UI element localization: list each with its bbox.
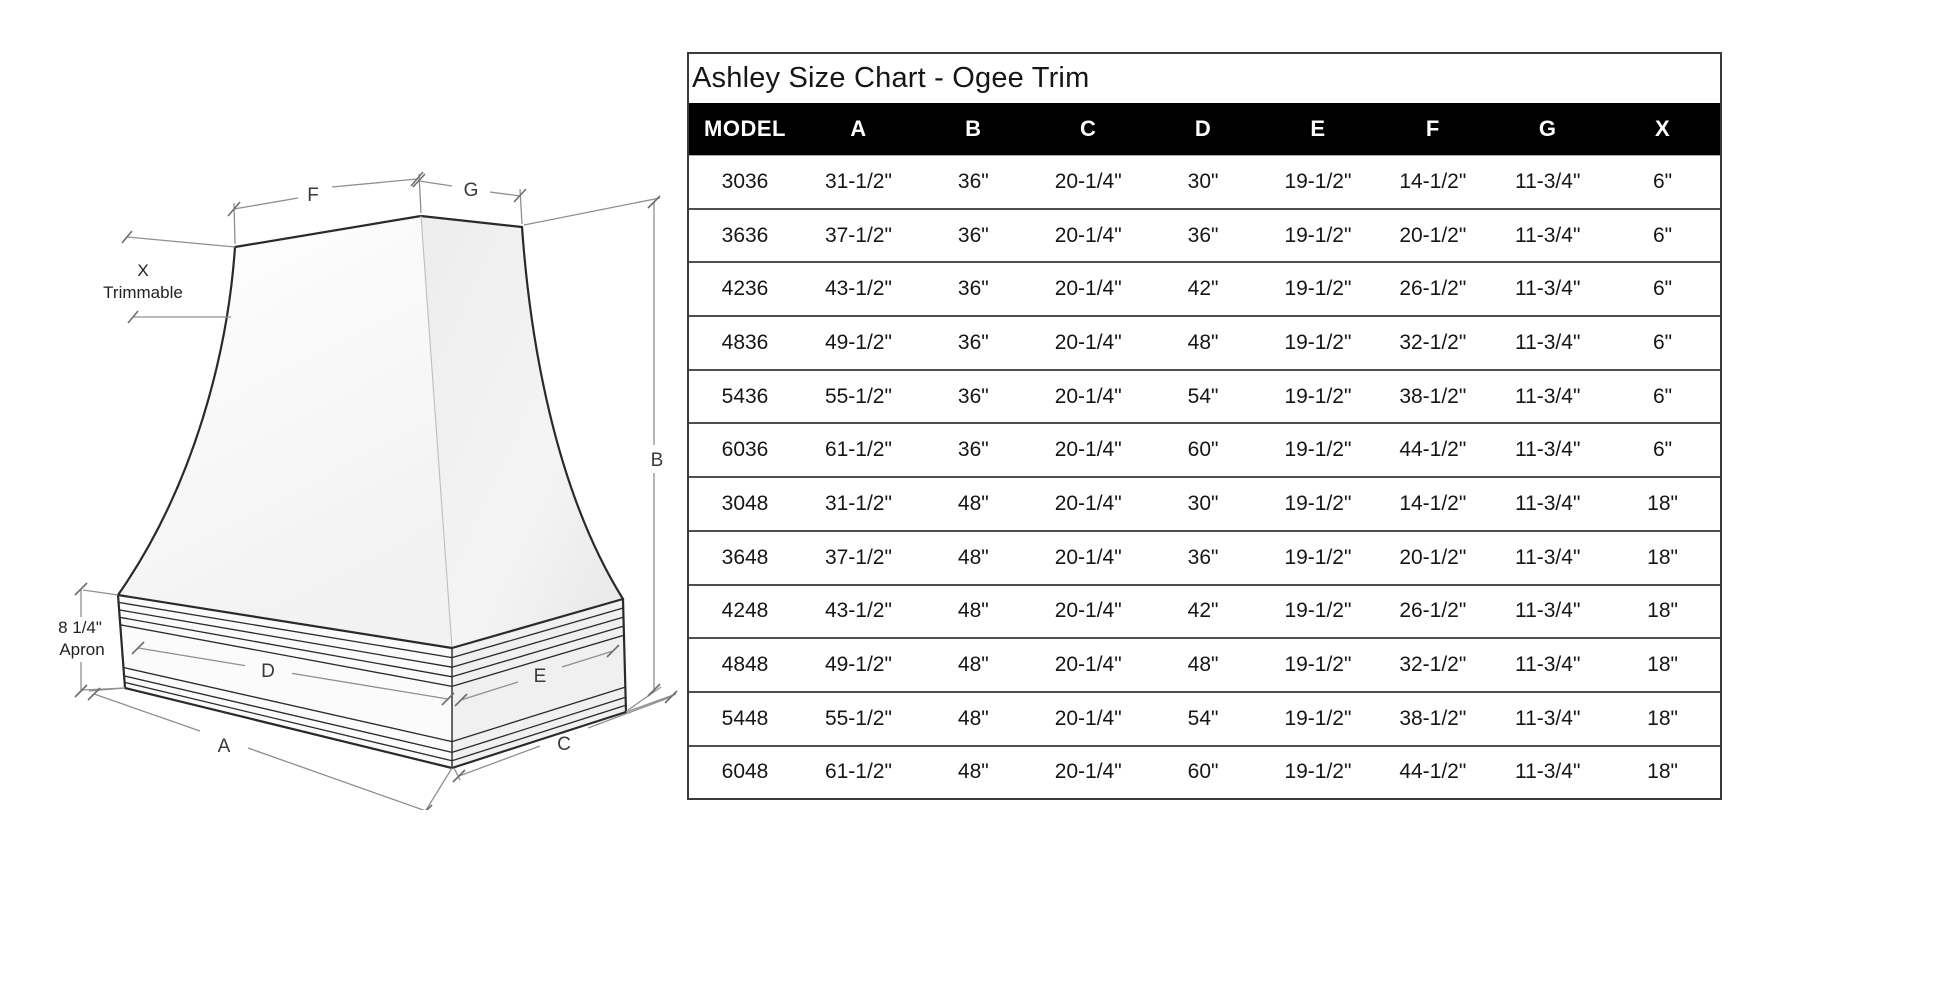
dimension-cell: 49-1/2" [801,316,916,370]
hood-diagram: F G B X Trimmable [40,170,680,810]
dimension-cell: 44-1/2" [1375,746,1490,799]
dimension-cell: 18" [1605,638,1720,692]
table-row: 604861-1/2"48"20-1/4"60"19-1/2"44-1/2"11… [689,746,1720,799]
table-row: 304831-1/2"48"20-1/4"30"19-1/2"14-1/2"11… [689,477,1720,531]
dimension-cell: 49-1/2" [801,638,916,692]
dimension-cell: 11-3/4" [1490,370,1605,424]
dimension-cell: 26-1/2" [1375,585,1490,639]
model-cell: 5448 [689,692,801,746]
header-row: MODEL A B C D E F G X [689,103,1720,156]
dimension-cell: 48" [916,585,1031,639]
dimension-cell: 20-1/4" [1031,370,1146,424]
dimension-cell: 30" [1146,156,1261,209]
table-row: 424843-1/2"48"20-1/4"42"19-1/2"26-1/2"11… [689,585,1720,639]
dimension-cell: 6" [1605,262,1720,316]
column-header-d: D [1146,103,1261,156]
model-cell: 3036 [689,156,801,209]
page: F G B X Trimmable [0,0,1946,1003]
model-cell: 5436 [689,370,801,424]
dimension-cell: 20-1/4" [1031,746,1146,799]
dimension-cell: 36" [1146,209,1261,263]
dimension-cell: 20-1/4" [1031,585,1146,639]
dimension-cell: 18" [1605,746,1720,799]
dimension-cell: 14-1/2" [1375,156,1490,209]
x-trimmable-label: X [137,261,148,280]
size-table-header: MODEL A B C D E F G X [689,103,1720,156]
dimension-cell: 11-3/4" [1490,585,1605,639]
dimension-cell: 19-1/2" [1261,209,1376,263]
dimension-label-g: G [464,180,479,201]
dimension-cell: 48" [916,746,1031,799]
table-row: 423643-1/2"36"20-1/4"42"19-1/2"26-1/2"11… [689,262,1720,316]
dimension-cell: 18" [1605,477,1720,531]
dimension-label-f: F [307,185,319,206]
table-row: 483649-1/2"36"20-1/4"48"19-1/2"32-1/2"11… [689,316,1720,370]
model-cell: 3048 [689,477,801,531]
dimension-cell: 42" [1146,262,1261,316]
dimension-cell: 19-1/2" [1261,156,1376,209]
dimension-cell: 43-1/2" [801,262,916,316]
dimension-cell: 11-3/4" [1490,531,1605,585]
column-header-a: A [801,103,916,156]
dimension-cell: 31-1/2" [801,156,916,209]
dimension-cell: 20-1/4" [1031,638,1146,692]
table-row: 603661-1/2"36"20-1/4"60"19-1/2"44-1/2"11… [689,423,1720,477]
dimension-cell: 6" [1605,209,1720,263]
dimension-cell: 48" [916,692,1031,746]
dimension-cell: 11-3/4" [1490,477,1605,531]
dimension-cell: 36" [916,370,1031,424]
dimension-cell: 36" [916,262,1031,316]
dimension-cell: 19-1/2" [1261,585,1376,639]
dimension-cell: 48" [1146,316,1261,370]
dimension-cell: 20-1/4" [1031,531,1146,585]
dimension-cell: 48" [916,477,1031,531]
column-header-x: X [1605,103,1720,156]
table-row: 363637-1/2"36"20-1/4"36"19-1/2"20-1/2"11… [689,209,1720,263]
table-row: 303631-1/2"36"20-1/4"30"19-1/2"14-1/2"11… [689,156,1720,209]
dimension-cell: 38-1/2" [1375,370,1490,424]
dimension-cell: 19-1/2" [1261,638,1376,692]
dimension-cell: 19-1/2" [1261,262,1376,316]
dimension-cell: 11-3/4" [1490,423,1605,477]
dimension-cell: 36" [916,156,1031,209]
dimension-cell: 6" [1605,316,1720,370]
dimension-cell: 36" [1146,531,1261,585]
model-cell: 4236 [689,262,801,316]
dimension-cell: 6" [1605,370,1720,424]
dimension-cell: 20-1/4" [1031,692,1146,746]
dimension-cell: 36" [916,209,1031,263]
dimension-cell: 20-1/4" [1031,209,1146,263]
dimension-cell: 61-1/2" [801,423,916,477]
table-row: 364837-1/2"48"20-1/4"36"19-1/2"20-1/2"11… [689,531,1720,585]
dimension-cell: 38-1/2" [1375,692,1490,746]
dimension-cell: 55-1/2" [801,692,916,746]
dimension-cell: 20-1/4" [1031,262,1146,316]
dimension-label-e: E [534,666,547,687]
dimension-cell: 19-1/2" [1261,531,1376,585]
dimension-cell: 60" [1146,746,1261,799]
dimension-cell: 11-3/4" [1490,746,1605,799]
dimension-label-b: B [651,450,664,471]
dimension-cell: 19-1/2" [1261,370,1376,424]
dimension-cell: 55-1/2" [801,370,916,424]
column-header-b: B [916,103,1031,156]
model-cell: 4848 [689,638,801,692]
dimension-cell: 32-1/2" [1375,316,1490,370]
dimension-cell: 20-1/4" [1031,156,1146,209]
column-header-e: E [1261,103,1376,156]
dimension-cell: 20-1/4" [1031,477,1146,531]
dimension-cell: 11-3/4" [1490,262,1605,316]
dimension-cell: 11-3/4" [1490,209,1605,263]
dimension-cell: 6" [1605,156,1720,209]
dimension-cell: 11-3/4" [1490,156,1605,209]
dimension-cell: 48" [916,638,1031,692]
apron-dimension-value: 8 1/4" [58,618,102,637]
dimension-cell: 31-1/2" [801,477,916,531]
dimension-cell: 32-1/2" [1375,638,1490,692]
dimension-cell: 43-1/2" [801,585,916,639]
dimension-cell: 11-3/4" [1490,638,1605,692]
dimension-cell: 20-1/2" [1375,209,1490,263]
dimension-cell: 20-1/2" [1375,531,1490,585]
apron-dimension-word: Apron [59,640,104,659]
dimension-cell: 48" [916,531,1031,585]
dimension-cell: 20-1/4" [1031,316,1146,370]
dimension-cell: 37-1/2" [801,531,916,585]
table-row: 484849-1/2"48"20-1/4"48"19-1/2"32-1/2"11… [689,638,1720,692]
dimension-cell: 18" [1605,585,1720,639]
dimension-cell: 36" [916,423,1031,477]
dimension-cell: 6" [1605,423,1720,477]
page-title: Ashley Size Chart - Ogee Trim [689,54,1720,103]
model-cell: 6048 [689,746,801,799]
column-header-f: F [1375,103,1490,156]
dimension-cell: 14-1/2" [1375,477,1490,531]
table-row: 544855-1/2"48"20-1/4"54"19-1/2"38-1/2"11… [689,692,1720,746]
hood-body [118,216,626,768]
model-cell: 4836 [689,316,801,370]
hood-diagram-svg: F G B X Trimmable [40,170,680,810]
dimension-cell: 18" [1605,692,1720,746]
dimension-cell: 44-1/2" [1375,423,1490,477]
dimension-cell: 19-1/2" [1261,746,1376,799]
dimension-cell: 19-1/2" [1261,316,1376,370]
dimension-cell: 30" [1146,477,1261,531]
dimension-cell: 54" [1146,370,1261,424]
model-cell: 6036 [689,423,801,477]
dimension-cell: 37-1/2" [801,209,916,263]
dimension-cell: 60" [1146,423,1261,477]
dimension-cell: 18" [1605,531,1720,585]
dimension-cell: 42" [1146,585,1261,639]
column-header-c: C [1031,103,1146,156]
model-cell: 3636 [689,209,801,263]
dimension-cell: 19-1/2" [1261,692,1376,746]
size-table: MODEL A B C D E F G X 303631-1/2"36"20-1… [689,103,1720,798]
table-row: 543655-1/2"36"20-1/4"54"19-1/2"38-1/2"11… [689,370,1720,424]
dimension-cell: 36" [916,316,1031,370]
column-header-model: MODEL [689,103,801,156]
dimension-cell: 54" [1146,692,1261,746]
size-table-body: 303631-1/2"36"20-1/4"30"19-1/2"14-1/2"11… [689,156,1720,799]
dimension-cell: 19-1/2" [1261,477,1376,531]
dimension-cell: 19-1/2" [1261,423,1376,477]
dimension-label-d: D [261,661,275,682]
model-cell: 4248 [689,585,801,639]
dimension-cell: 61-1/2" [801,746,916,799]
dimension-cell: 26-1/2" [1375,262,1490,316]
dimension-cell: 11-3/4" [1490,692,1605,746]
size-chart-sheet: Ashley Size Chart - Ogee Trim MODEL A B … [687,52,1722,800]
dimension-label-a: A [218,736,231,757]
dimension-cell: 20-1/4" [1031,423,1146,477]
dimension-cell: 11-3/4" [1490,316,1605,370]
dimension-label-c: C [557,734,571,755]
x-trimmable-sublabel: Trimmable [103,283,183,302]
model-cell: 3648 [689,531,801,585]
dimension-cell: 48" [1146,638,1261,692]
column-header-g: G [1490,103,1605,156]
